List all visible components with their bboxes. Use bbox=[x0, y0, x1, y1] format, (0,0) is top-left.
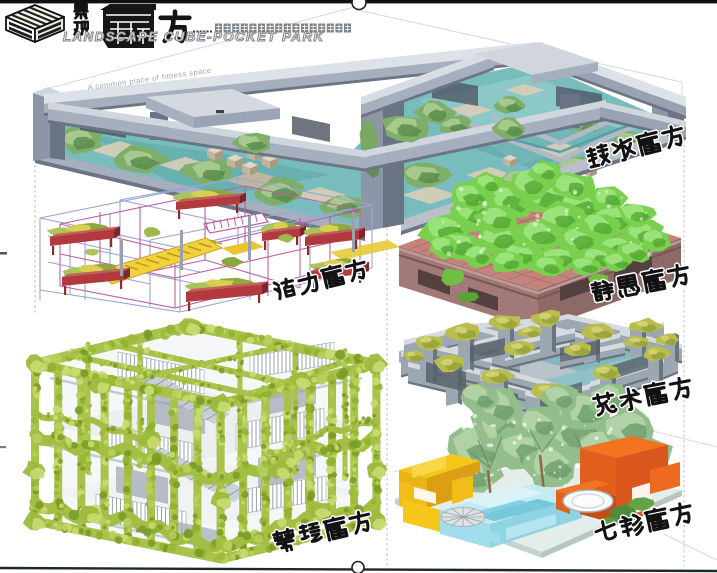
svg-text:LANDSCAPE CUBE-POCKET PARK: LANDSCAPE CUBE-POCKET PARK bbox=[63, 29, 325, 44]
